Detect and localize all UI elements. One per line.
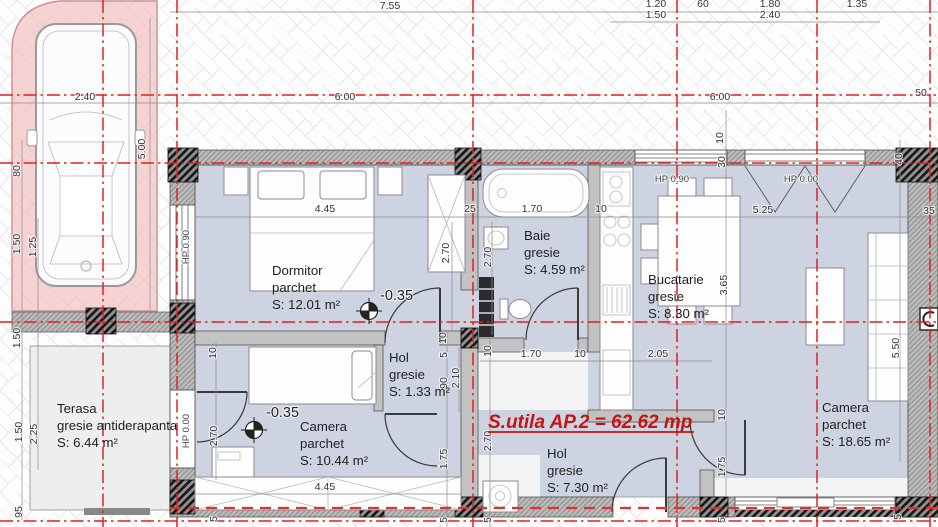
nightstand [224,167,248,195]
dimension-label: 10 [207,347,219,359]
dimension-label: 10 [482,345,494,357]
dimension-label: 1.75 [438,449,450,470]
bed-double-part [258,171,304,199]
dimension-label: 10 [574,348,586,360]
dimension-label: 5.50 [890,338,902,359]
dimension-label: 2.25 [28,424,40,445]
dimension-label: 2.70 [440,243,452,264]
room-label-line: gresie [547,463,583,478]
nightstand [378,167,402,195]
dimension-label: 2.40 [75,91,96,103]
level-value-label: -0.35 [266,405,299,421]
dimension-label: 2.10 [450,368,462,389]
room-label-line: Dormitor [272,263,323,278]
dimension-label: 5 [892,514,904,520]
dimension-label: 2.05 [648,348,669,360]
dimension-label: 60 [697,0,709,10]
level-value-label: -0.35 [380,288,413,304]
room-label-line: S: 1.33 m² [389,384,450,399]
dimension-label: 1.70 [521,348,542,360]
dimension-label: 50 [915,87,927,99]
parking-area [12,1,170,334]
dimension-label: 1.50 [13,422,25,443]
dimension-label: 5 [482,517,494,523]
floor-living-window-band [714,478,908,497]
dimension-label: 2.70 [208,426,220,447]
dimension-label: 1.50 [11,328,23,349]
dimension-label: 10 [714,132,726,144]
floor-plan-page: -0.35-0.35 7.551.20601.801.351.502.402.4… [0,0,938,527]
room-label-line: Hol [389,350,409,365]
dimension-label: 2.70 [482,247,494,268]
car [27,24,145,286]
room-label-line: gresie antiderapanta [57,418,178,433]
dimension-label: 5 [438,517,450,523]
sofa-part [868,233,908,401]
dining-table-part [704,178,732,196]
dimension-label: 10 [437,332,449,344]
column [168,148,198,182]
dimension-label: 5.00 [136,139,148,160]
usable-area-title: S.utila AP.2 = 62.62 mp [488,412,694,433]
dimension-label: 7.55 [380,0,401,12]
room-label-line: S: 12.01 m² [272,297,341,312]
parapet-height-label: HP 0.90 [655,174,689,185]
bed-double-part [320,171,366,199]
room-label-line: Bucatarie [648,272,704,287]
coffee-table [806,268,844,345]
room-label-line: S: 8.30 m² [648,306,709,321]
dimension-label: 5 [438,352,450,358]
dimension-label: 5 [208,516,220,522]
dimension-label: 1.25 [27,237,39,258]
room-label-line: S: 6.44 m² [57,435,118,450]
dimension-label: 1.50 [646,9,667,21]
desk [212,447,254,480]
dimension-label: 1.75 [716,457,728,478]
dimension-label: 6.00 [710,91,731,103]
dimension-label: 1.70 [522,203,543,215]
dimension-label: 5 [716,517,728,523]
dimension-label: 30 [716,156,728,168]
room-label-line: gresie [648,289,684,304]
room-label-line: Hol [547,446,567,461]
dimension-label: 1.35 [847,0,868,10]
sofa [868,233,908,401]
wall-interior-v1 [461,343,478,497]
toilet-part [509,300,531,319]
room-label-line: parchet [272,280,316,295]
dimension-label: 2.40 [760,9,781,21]
dimension-label: 3.65 [718,275,730,296]
usable-area-text: S.utila AP.2 = 62.62 mp [488,412,692,433]
room-label-line: Camera [822,400,870,415]
dimension-label: 2.70 [482,431,494,452]
car-part [60,176,112,236]
room-label-line: S: 4.59 m² [524,262,585,277]
dimension-label: 95 [13,506,25,518]
car-part [36,24,136,286]
tv-console [777,498,834,507]
dimension-label: 1.50 [11,234,23,255]
parking-column [86,308,116,334]
room-label-line: Terasa [57,401,97,416]
parapet-height-label: HP 0.00 [784,174,818,185]
room-label-line: parchet [300,436,344,451]
parapet-height-label: HP 0.00 [181,414,192,448]
column [170,303,195,333]
floor-plan-svg: -0.35-0.35 7.551.20601.801.351.502.402.4… [0,0,938,527]
room-label-line: S: 7.30 m² [547,480,608,495]
dimension-label: 5.25 [753,204,774,216]
dimension-label: 6.00 [335,91,356,103]
dimension-label: 35 [923,205,935,217]
wall-interior-v2 [588,165,600,352]
dimension-label: 10 [595,203,607,215]
room-label-line: S: 10.44 m² [300,453,369,468]
terrace-step [84,508,150,515]
room-label-line: gresie [524,245,560,260]
dimension-label: 10 [716,409,728,421]
dimension-label: 4.45 [315,481,336,493]
toilet-part [500,299,508,319]
toilet [500,299,531,319]
column [461,328,478,348]
car-part [27,130,37,146]
bed-single-part [352,351,372,400]
bed-single [249,347,376,404]
room-label-line: Camera [300,419,348,434]
dimension-label: 4.45 [315,203,336,215]
wall-interior-h1 [195,331,385,345]
room-label-line: parchet [822,417,866,432]
bathroom-sink [484,227,508,249]
room-label-line: gresie [389,367,425,382]
dimension-label: 80 [11,165,23,177]
dimension-label: 40 [893,153,905,165]
section-marker [920,308,938,330]
room-label-line: S: 18.65 m² [822,434,891,449]
wall-hatch-exterior [735,510,895,517]
wall-interior-v3 [700,470,714,497]
dining-table-part [641,224,658,250]
dimension-label: 25 [464,203,476,215]
parapet-height-label: HP 0.90 [181,230,192,264]
room-label-line: Baie [524,228,550,243]
